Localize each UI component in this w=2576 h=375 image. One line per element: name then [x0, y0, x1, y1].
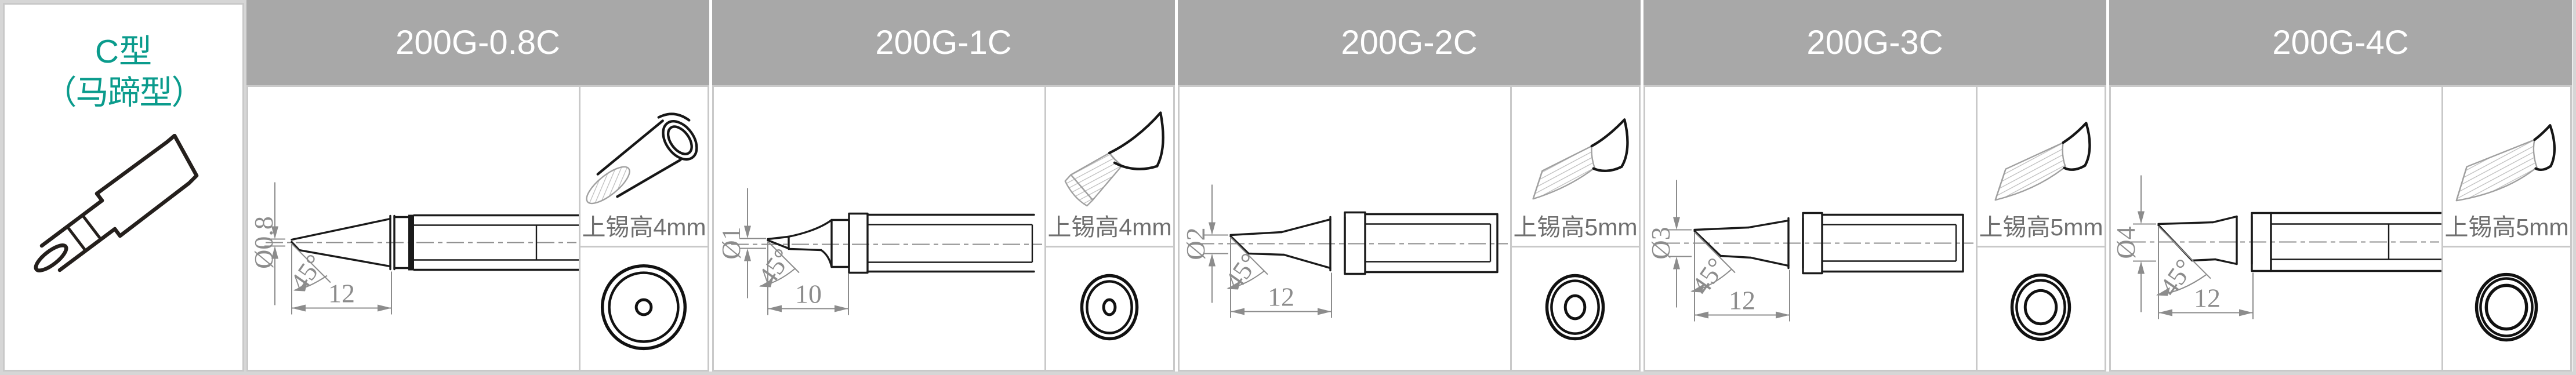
technical-drawing-svg: Ø2 45° 12 — [1180, 87, 1510, 370]
diameter-dimension-label: Ø0.8 — [249, 216, 278, 269]
tip-3d-icon — [1514, 87, 1637, 209]
length-dimension-label: 12 — [1729, 286, 1755, 315]
category-title: C型 （马蹄型） — [44, 31, 204, 114]
technical-drawing-cell: Ø3 45° 12 — [1645, 87, 1976, 370]
product-column-200g-4c: 200G-4C — [2109, 0, 2572, 372]
diameter-dimension-label: Ø4 — [2111, 226, 2140, 259]
tip-3d-illustration-icon — [28, 134, 219, 296]
tip-front-view-icon — [1979, 249, 2103, 368]
tip-3d-view-cell: 上锡高4mm — [580, 87, 708, 246]
tip-front-view-icon — [582, 249, 706, 368]
product-model-header: 200G-2C — [1178, 0, 1641, 85]
category-title-line1: C型 — [44, 31, 204, 72]
diameter-dimension-label: Ø2 — [1181, 227, 1210, 260]
tip-front-view-cell — [1978, 247, 2105, 370]
product-detail-grid: Ø3 45° 12 — [1643, 85, 2106, 372]
product-model-header: 200G-0.8C — [246, 0, 709, 85]
tin-height-label: 上锡高5mm — [2444, 209, 2568, 241]
product-columns: 200G-0.8C — [246, 0, 2573, 372]
diameter-dimension-label: Ø1 — [716, 227, 746, 259]
tip-front-view-cell — [1512, 247, 1639, 370]
length-dimension-label: 12 — [2194, 283, 2221, 313]
product-model-label: 200G-2C — [1341, 23, 1477, 62]
tip-catalog-sheet: C型 （马蹄型） 200G-0.8C — [0, 0, 2576, 375]
product-detail-grid: Ø2 45° 12 — [1178, 85, 1641, 372]
category-card: C型 （马蹄型） — [3, 3, 244, 372]
tip-3d-view-cell: 上锡高4mm — [1046, 87, 1173, 246]
tip-3d-view-cell: 上锡高5mm — [1512, 87, 1639, 246]
tip-3d-icon — [1048, 87, 1171, 209]
tin-height-label: 上锡高4mm — [582, 209, 706, 241]
product-column-200g-2c: 200G-2C — [1178, 0, 1641, 372]
product-column-200g-08c: 200G-0.8C — [246, 0, 709, 372]
product-model-label: 200G-0.8C — [396, 23, 560, 62]
product-model-label: 200G-4C — [2272, 23, 2408, 62]
angle-dimension-label: 45° — [284, 249, 330, 296]
angle-dimension-label: 45° — [1219, 247, 1265, 295]
technical-drawing-cell: Ø0.8 45° 12 — [248, 87, 579, 370]
tip-front-view-icon — [1514, 249, 1637, 368]
tip-3d-icon — [1979, 87, 2103, 209]
length-dimension-label: 12 — [328, 279, 355, 308]
technical-drawing-svg: Ø1 45° 10 — [714, 87, 1044, 370]
tip-front-view-icon — [2445, 249, 2568, 368]
length-dimension-label: 12 — [1268, 282, 1294, 312]
tip-front-view-cell — [580, 247, 708, 370]
technical-drawing-svg: Ø3 45° 12 — [1645, 87, 1976, 370]
tip-front-view-icon — [1048, 249, 1171, 368]
tin-height-label: 上锡高5mm — [1979, 209, 2103, 241]
diameter-dimension-label: Ø3 — [1646, 227, 1675, 259]
product-column-200g-3c: 200G-3C — [1643, 0, 2106, 372]
technical-drawing-cell: Ø4 45° 12 — [2111, 87, 2441, 370]
tip-front-view-cell — [1046, 247, 1173, 370]
tin-height-label: 上锡高5mm — [1513, 209, 1637, 241]
product-detail-grid: Ø0.8 45° 12 — [246, 85, 709, 372]
technical-drawing-svg: Ø4 45° 12 — [2111, 87, 2441, 370]
product-model-label: 200G-1C — [875, 23, 1011, 62]
product-model-header: 200G-4C — [2109, 0, 2572, 85]
product-model-label: 200G-3C — [1806, 23, 1943, 62]
tip-3d-view-cell: 上锡高5mm — [1978, 87, 2105, 246]
product-model-header: 200G-1C — [712, 0, 1175, 85]
tip-front-view-cell — [2443, 247, 2570, 370]
product-column-200g-1c: 200G-1C — [712, 0, 1175, 372]
product-model-header: 200G-3C — [1643, 0, 2106, 85]
technical-drawing-svg: Ø0.8 45° 12 — [248, 87, 579, 370]
product-detail-grid: Ø4 45° 12 — [2109, 85, 2572, 372]
category-title-line2: （马蹄型） — [44, 72, 204, 114]
technical-drawing-cell: Ø1 45° 10 — [714, 87, 1044, 370]
angle-dimension-label: 45° — [1686, 252, 1732, 300]
angle-dimension-label: 45° — [752, 243, 798, 290]
tin-height-label: 上锡高4mm — [1047, 209, 1171, 241]
tip-3d-icon — [582, 87, 706, 209]
technical-drawing-cell: Ø2 45° 12 — [1180, 87, 1510, 370]
product-detail-grid: Ø1 45° 10 — [712, 85, 1175, 372]
tip-3d-icon — [2445, 87, 2568, 209]
tip-3d-view-cell: 上锡高5mm — [2443, 87, 2570, 246]
length-dimension-label: 10 — [795, 279, 822, 309]
